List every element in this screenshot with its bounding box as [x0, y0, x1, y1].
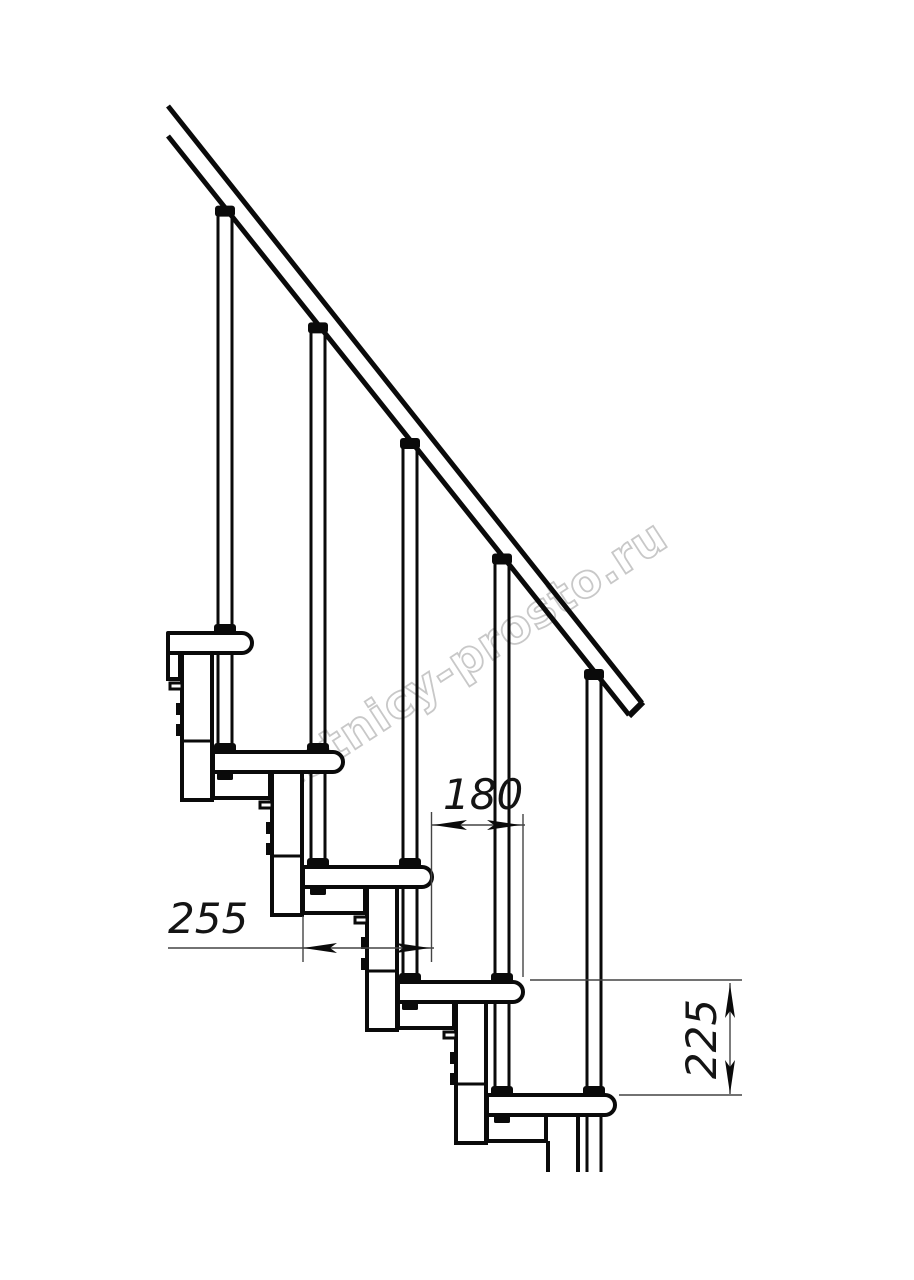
module-box — [182, 653, 212, 800]
rod-bottom-flange — [399, 973, 421, 983]
rod-nut — [402, 1003, 418, 1010]
staircase-technical-drawing: lestnicy-prosto.ru 255 180 225 — [0, 0, 914, 1280]
module-bolt-tab — [450, 1073, 457, 1085]
module-flange-tick — [260, 802, 272, 808]
tread-bracket-plate — [168, 653, 180, 679]
rod-nut — [310, 888, 326, 895]
module-box — [456, 1002, 486, 1143]
rail-connector — [492, 553, 512, 564]
baluster-foot-flange — [307, 743, 329, 753]
handrail-lower-line — [168, 136, 629, 715]
rail-connector — [215, 206, 235, 217]
tread-4 — [398, 982, 523, 1002]
rail-connector — [308, 322, 328, 333]
rail-connector — [400, 438, 420, 449]
handrail-upper-line — [168, 106, 642, 703]
module-bolt-tab — [361, 958, 368, 970]
dimension-label-255: 255 — [168, 894, 248, 943]
handrail-end-cap — [629, 702, 643, 716]
module-flange-tick — [170, 683, 182, 689]
baluster-foot-flange — [399, 858, 421, 868]
tread-2 — [213, 752, 343, 772]
rod-bottom-flange — [214, 743, 236, 753]
handrail — [168, 106, 643, 716]
module-flange-tick — [444, 1032, 456, 1038]
step-support-5 — [487, 1115, 601, 1172]
rod-bottom-flange — [307, 858, 329, 868]
tread-1 — [168, 633, 252, 653]
rod-nut — [494, 1116, 510, 1123]
rail-connector — [584, 669, 604, 680]
module-bolt-tab — [266, 843, 273, 855]
dimension-step-going: 180 — [432, 770, 526, 977]
module-bolt-tab — [450, 1052, 457, 1064]
baluster-5 — [583, 669, 605, 1096]
dimension-label-225: 225 — [677, 999, 726, 1079]
tread-5 — [487, 1095, 615, 1115]
module-flange-tick — [355, 917, 367, 923]
baluster-foot-flange — [491, 973, 513, 983]
baluster-foot-flange — [214, 624, 236, 634]
rod-nut — [217, 773, 233, 780]
baluster-foot-flange — [583, 1086, 605, 1096]
dimension-step-rise: 225 — [530, 980, 742, 1095]
staircase-structure — [168, 106, 643, 1172]
rod-bottom-flange — [491, 1086, 513, 1096]
module-box — [367, 887, 397, 1030]
module-bolt-tab — [176, 703, 183, 715]
dimension-label-180: 180 — [443, 770, 523, 819]
module-bolt-tab — [176, 724, 183, 736]
module-box — [272, 772, 302, 915]
tread-3 — [303, 867, 432, 887]
module-bolt-tab — [361, 937, 368, 949]
module-bolt-tab — [266, 822, 273, 834]
